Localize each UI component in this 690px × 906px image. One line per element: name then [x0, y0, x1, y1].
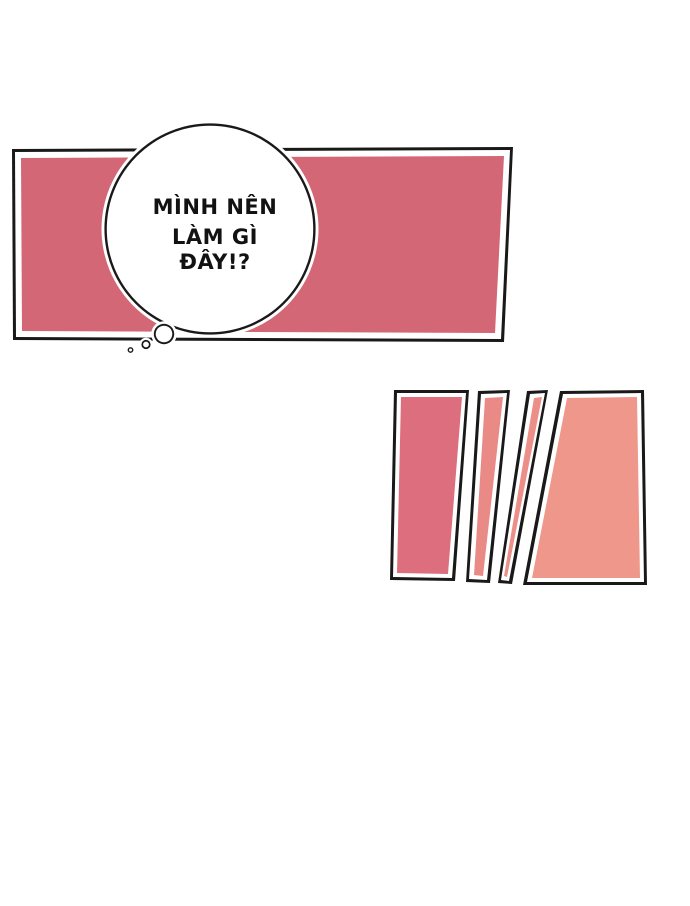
- speed-shard-1: [390, 390, 469, 581]
- bubble-text-line-3: ĐÂY!?: [179, 249, 250, 274]
- thought-trail-dot-small: [125, 345, 135, 355]
- bubble-text-line-2: LÀM GÌ: [172, 224, 258, 249]
- thought-trail-dot-medium: [139, 338, 153, 352]
- thought-trail-dot-large: [151, 321, 177, 347]
- speed-shards: [390, 390, 647, 585]
- comic-art: MÌNH NÊN LÀM GÌ ĐÂY!?: [0, 0, 690, 906]
- trail-dot-small-fill: [129, 349, 132, 352]
- bubble-text-line-1: MÌNH NÊN: [153, 194, 278, 219]
- comic-page: MÌNH NÊN LÀM GÌ ĐÂY!?: [0, 0, 690, 906]
- trail-dot-medium-fill: [143, 342, 149, 348]
- trail-dot-large-fill: [156, 326, 173, 343]
